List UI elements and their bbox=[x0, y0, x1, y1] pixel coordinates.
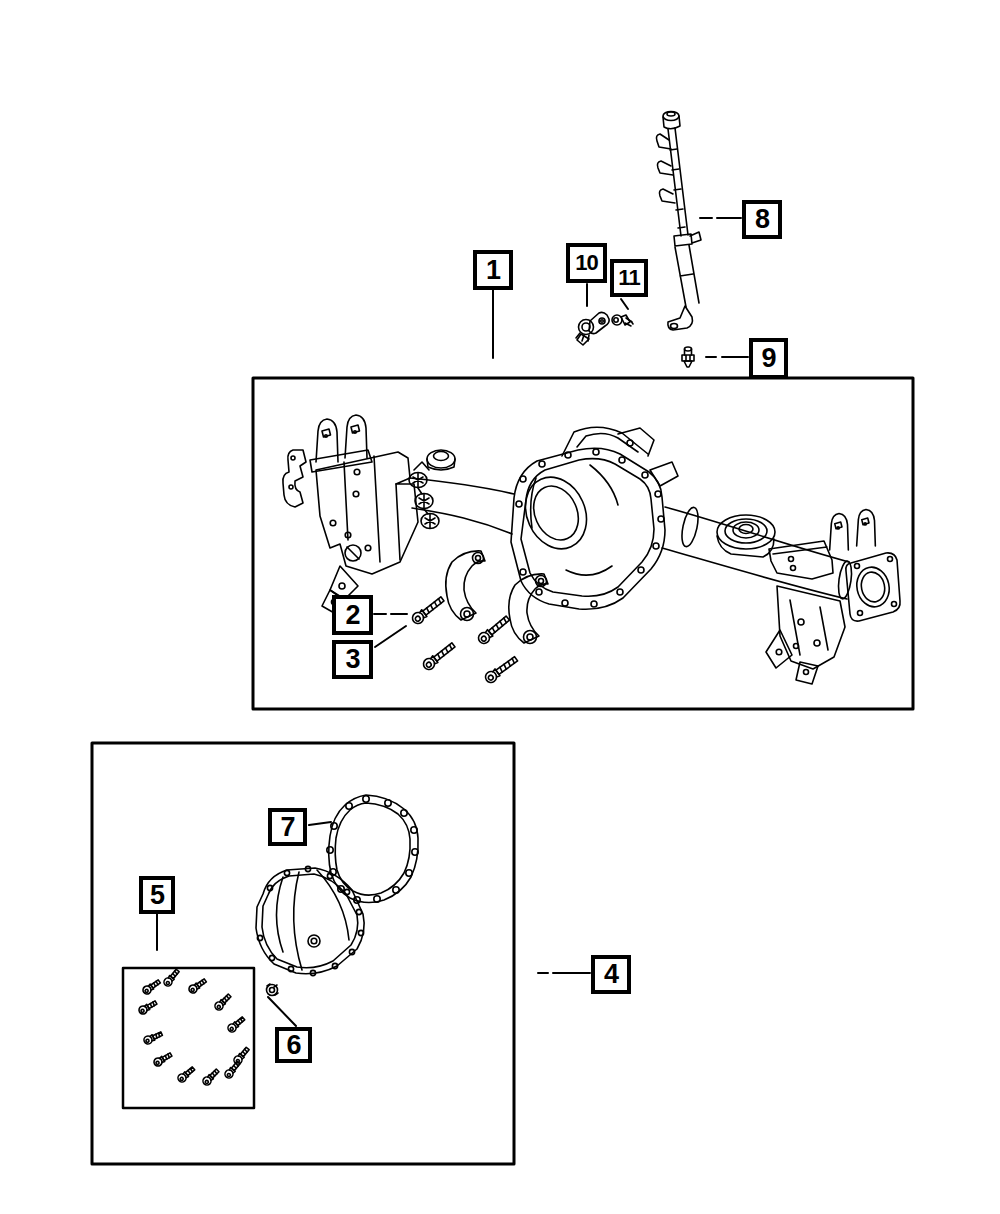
sensor-screw-drawing bbox=[612, 315, 633, 326]
callout-6-label: 6 bbox=[286, 1030, 300, 1061]
speed-sensor-drawing bbox=[576, 312, 609, 345]
callout-5-label: 5 bbox=[150, 880, 164, 911]
callout-3[interactable]: 3 bbox=[332, 640, 373, 679]
parts-diagram-page: 1 2 3 4 5 6 7 8 9 10 11 bbox=[0, 0, 1000, 1214]
callout-4-label: 4 bbox=[604, 959, 618, 990]
callout-2-label: 2 bbox=[345, 600, 359, 631]
callout-10[interactable]: 10 bbox=[566, 243, 607, 283]
differential-cover-drawing bbox=[256, 866, 364, 975]
axle-vent-hose-drawing bbox=[656, 112, 701, 331]
leader-lines bbox=[157, 218, 748, 1026]
callout-8-label: 8 bbox=[755, 204, 769, 235]
callout-9-label: 9 bbox=[761, 343, 775, 374]
leader-7 bbox=[309, 822, 331, 825]
callout-10-label: 10 bbox=[575, 250, 597, 276]
callout-1-label: 1 bbox=[486, 255, 500, 286]
callout-4[interactable]: 4 bbox=[591, 955, 631, 994]
callout-6[interactable]: 6 bbox=[275, 1027, 312, 1063]
leader-3 bbox=[375, 626, 406, 647]
callout-7-label: 7 bbox=[280, 812, 294, 843]
callout-11-label: 11 bbox=[618, 265, 639, 291]
parts-diagram-artwork bbox=[0, 0, 1000, 1214]
callout-9[interactable]: 9 bbox=[749, 338, 788, 379]
callout-1[interactable]: 1 bbox=[473, 250, 513, 290]
callout-3-label: 3 bbox=[345, 644, 359, 675]
cover-bolt-kit-drawing bbox=[123, 968, 254, 1108]
cover-nut-drawing bbox=[267, 984, 279, 996]
callout-11[interactable]: 11 bbox=[610, 259, 648, 297]
differential-cover-panel bbox=[92, 743, 514, 1164]
vent-fitting-drawing bbox=[682, 347, 694, 367]
leader-11 bbox=[621, 299, 628, 309]
callout-8[interactable]: 8 bbox=[742, 200, 782, 239]
callout-2[interactable]: 2 bbox=[332, 595, 373, 635]
callout-7[interactable]: 7 bbox=[268, 808, 307, 846]
callout-5[interactable]: 5 bbox=[139, 876, 175, 914]
leader-6 bbox=[268, 997, 296, 1026]
axle-housing-assembly-drawing bbox=[283, 415, 900, 684]
